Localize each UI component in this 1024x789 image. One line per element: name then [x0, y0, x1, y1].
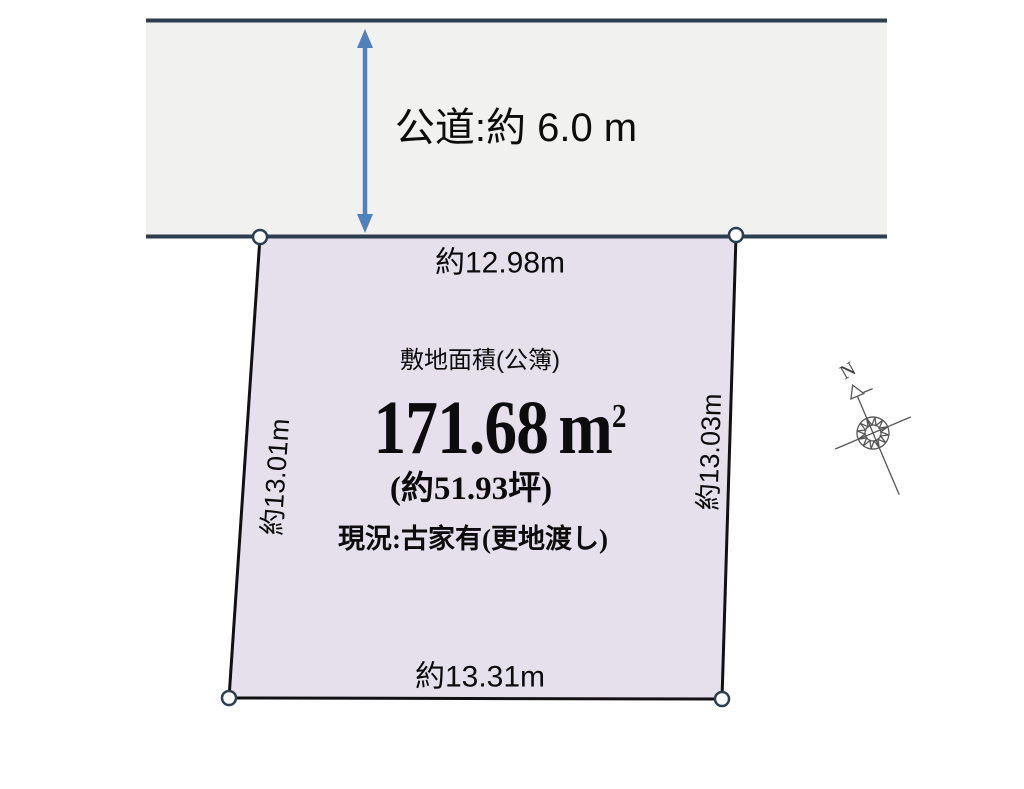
boundary-point-bottom-left	[222, 691, 236, 705]
dimension-right: 約13.03m	[694, 393, 728, 511]
compass-north-arrowhead	[846, 382, 864, 399]
area-unit-exponent: 2	[612, 398, 627, 435]
area-number: 171.68	[373, 386, 548, 470]
dimension-bottom: 約13.31m	[415, 661, 545, 694]
site-plan: 公道:約 6.0 m 約12.98m 約13.31m 約13.01m 約13.0…	[0, 0, 1024, 789]
area-value: 171.68m2	[373, 387, 626, 471]
compass-icon	[815, 369, 937, 511]
road-label: 公道:約 6.0 m	[395, 106, 637, 150]
area-tsubo: (約51.93坪)	[390, 471, 552, 507]
area-unit: m	[558, 386, 612, 470]
boundary-point-top-right	[729, 228, 743, 242]
boundary-point-bottom-right	[715, 692, 729, 706]
area-caption: 敷地面積(公簿)	[400, 348, 560, 374]
boundary-point-top-left	[253, 230, 267, 244]
dimension-top: 約12.98m	[435, 247, 565, 280]
current-status-label: 現況:古家有(更地渡し)	[338, 525, 608, 555]
compass-arrow-tick	[863, 389, 872, 393]
